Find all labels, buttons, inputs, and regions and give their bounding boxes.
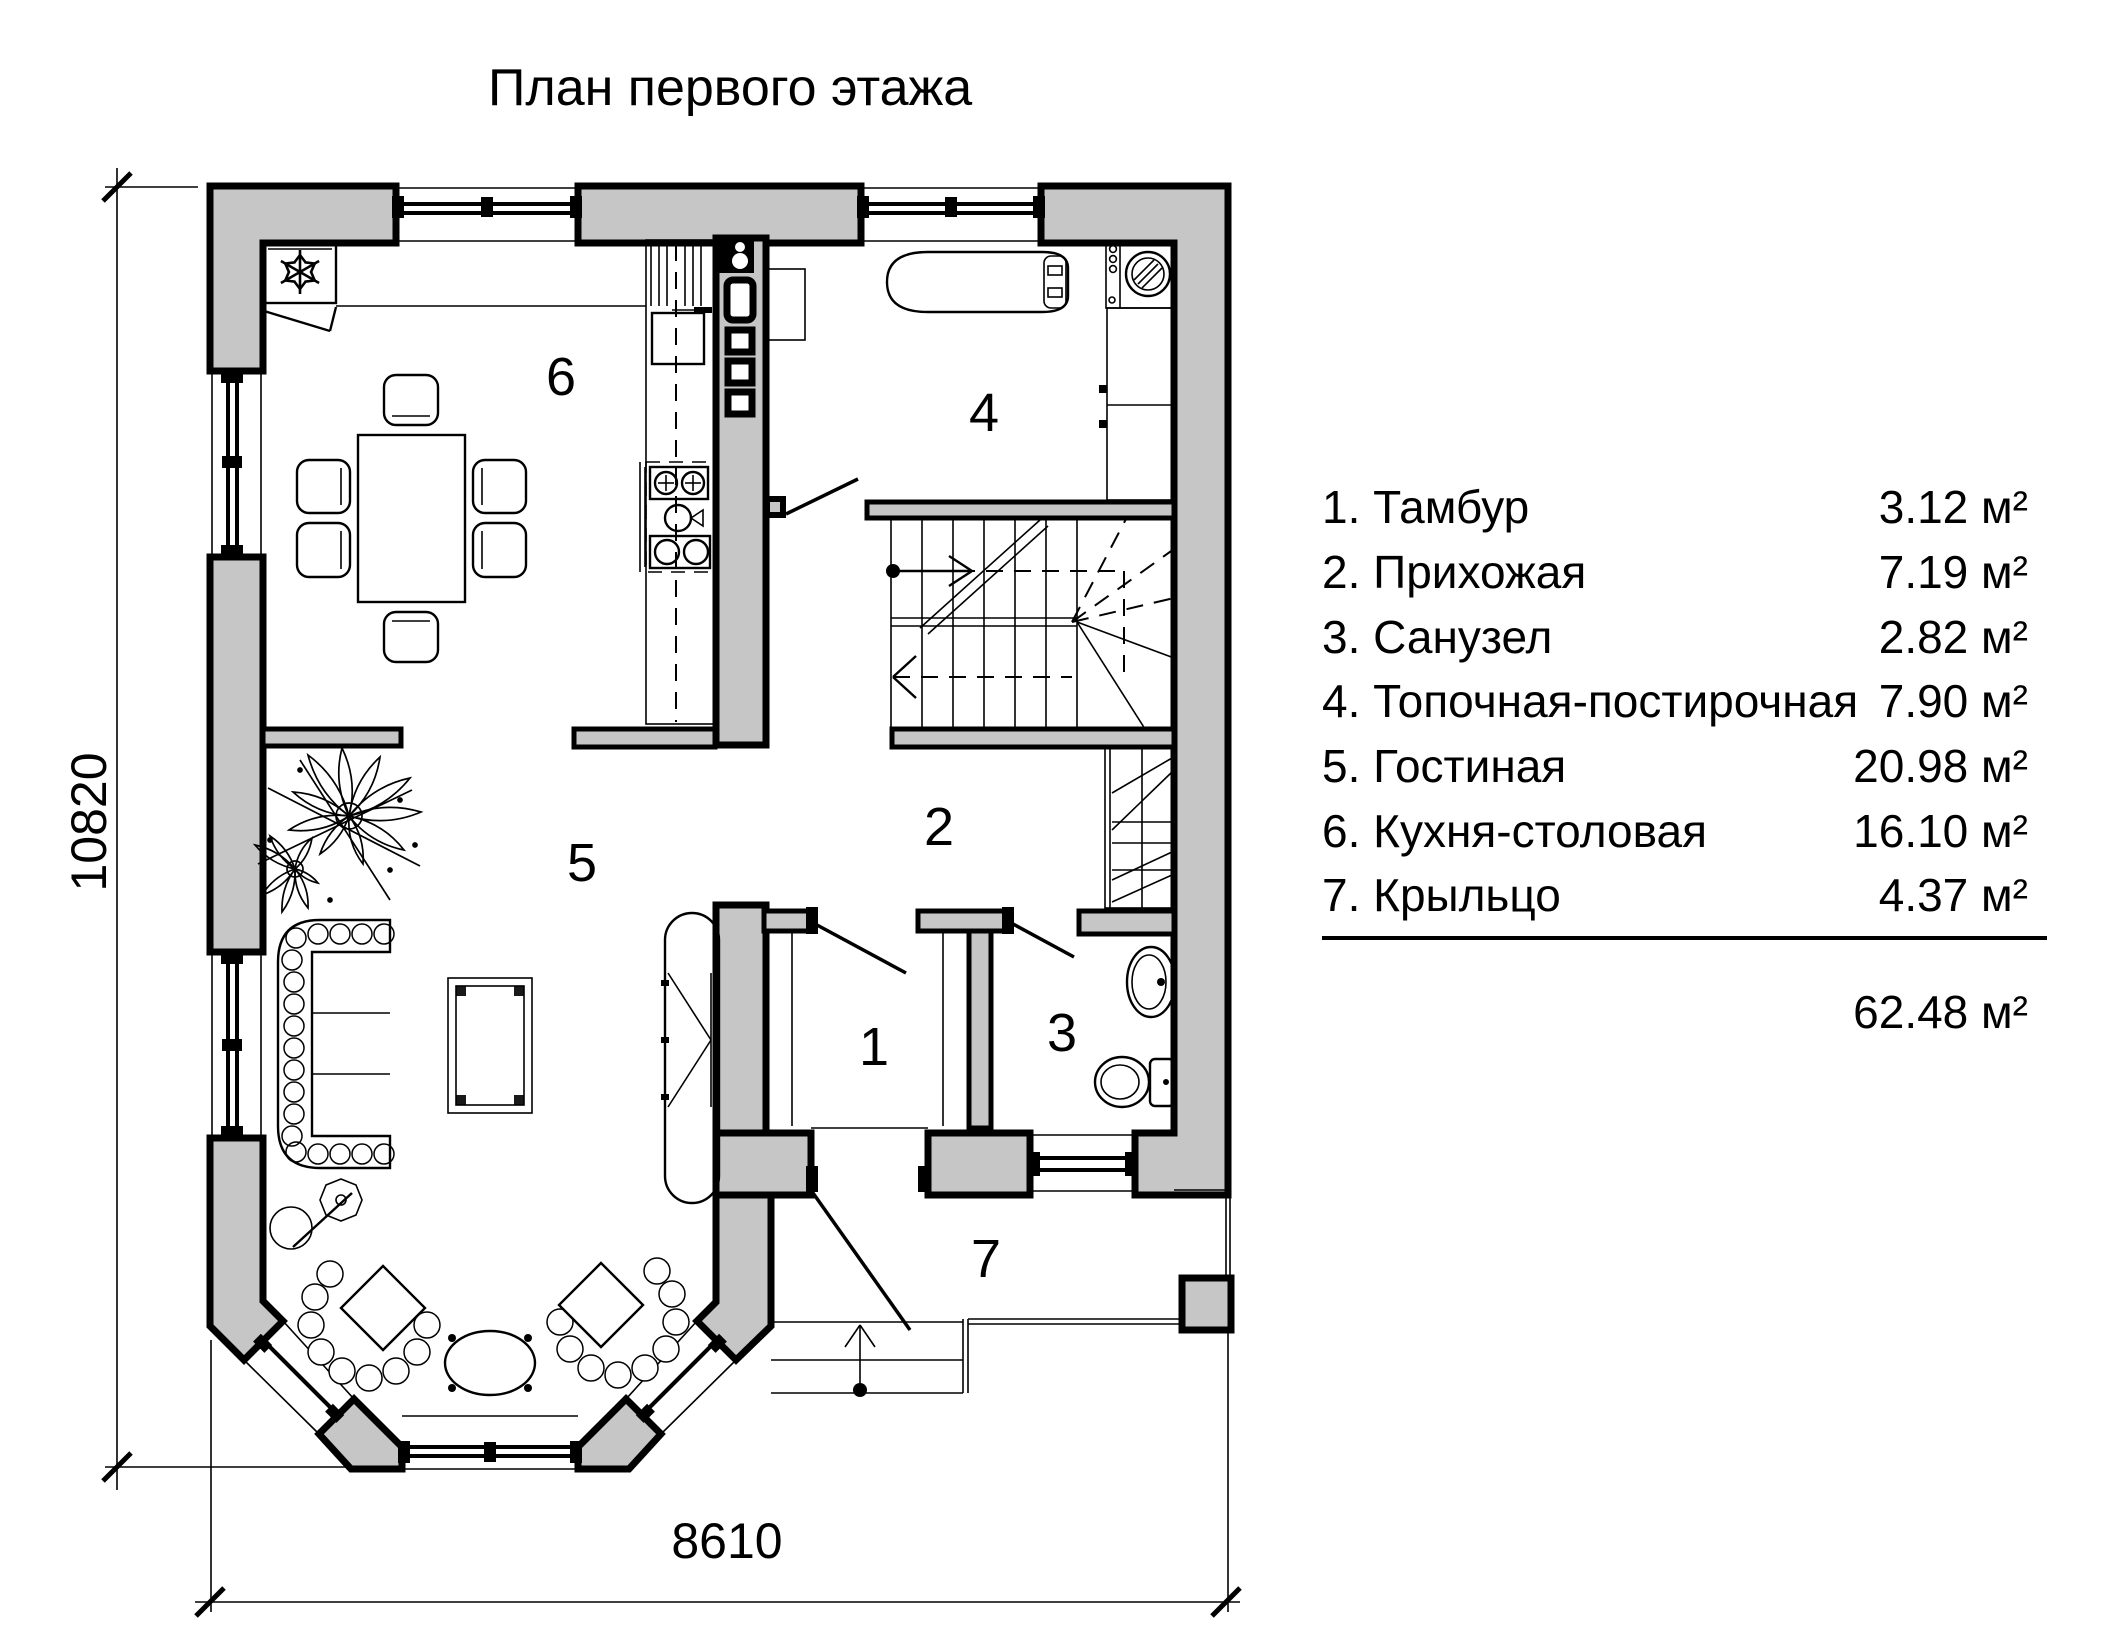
- svg-text:7.19 м²: 7.19 м²: [1879, 546, 2028, 598]
- svg-text:2.82 м²: 2.82 м²: [1879, 611, 2028, 663]
- svg-text:62.48 м²: 62.48 м²: [1853, 986, 2028, 1038]
- svg-text:План первого этажа: План первого этажа: [488, 59, 972, 117]
- svg-text:5: 5: [567, 833, 597, 893]
- svg-text:6. Кухня-столовая: 6. Кухня-столовая: [1322, 805, 1707, 857]
- svg-text:4.37 м²: 4.37 м²: [1879, 869, 2028, 921]
- svg-text:2. Прихожая: 2. Прихожая: [1322, 546, 1586, 598]
- svg-text:4: 4: [969, 383, 999, 443]
- svg-text:7.90 м²: 7.90 м²: [1879, 675, 2028, 727]
- svg-text:20.98 м²: 20.98 м²: [1853, 740, 2028, 792]
- svg-text:16.10 м²: 16.10 м²: [1853, 805, 2028, 857]
- svg-text:1: 1: [859, 1017, 889, 1077]
- svg-text:1. Тамбур: 1. Тамбур: [1322, 481, 1529, 533]
- svg-text:6: 6: [546, 347, 576, 407]
- svg-text:3.12 м²: 3.12 м²: [1879, 481, 2028, 533]
- svg-text:3: 3: [1047, 1003, 1077, 1063]
- svg-text:2: 2: [924, 797, 954, 857]
- svg-text:8610: 8610: [671, 1513, 782, 1569]
- svg-text:7. Крыльцо: 7. Крыльцо: [1322, 869, 1561, 921]
- svg-text:7: 7: [971, 1229, 1001, 1289]
- svg-text:4. Топочная-постирочная: 4. Топочная-постирочная: [1322, 675, 1858, 727]
- svg-text:5. Гостиная: 5. Гостиная: [1322, 740, 1566, 792]
- svg-text:10820: 10820: [61, 752, 117, 891]
- svg-text:3. Санузел: 3. Санузел: [1322, 611, 1552, 663]
